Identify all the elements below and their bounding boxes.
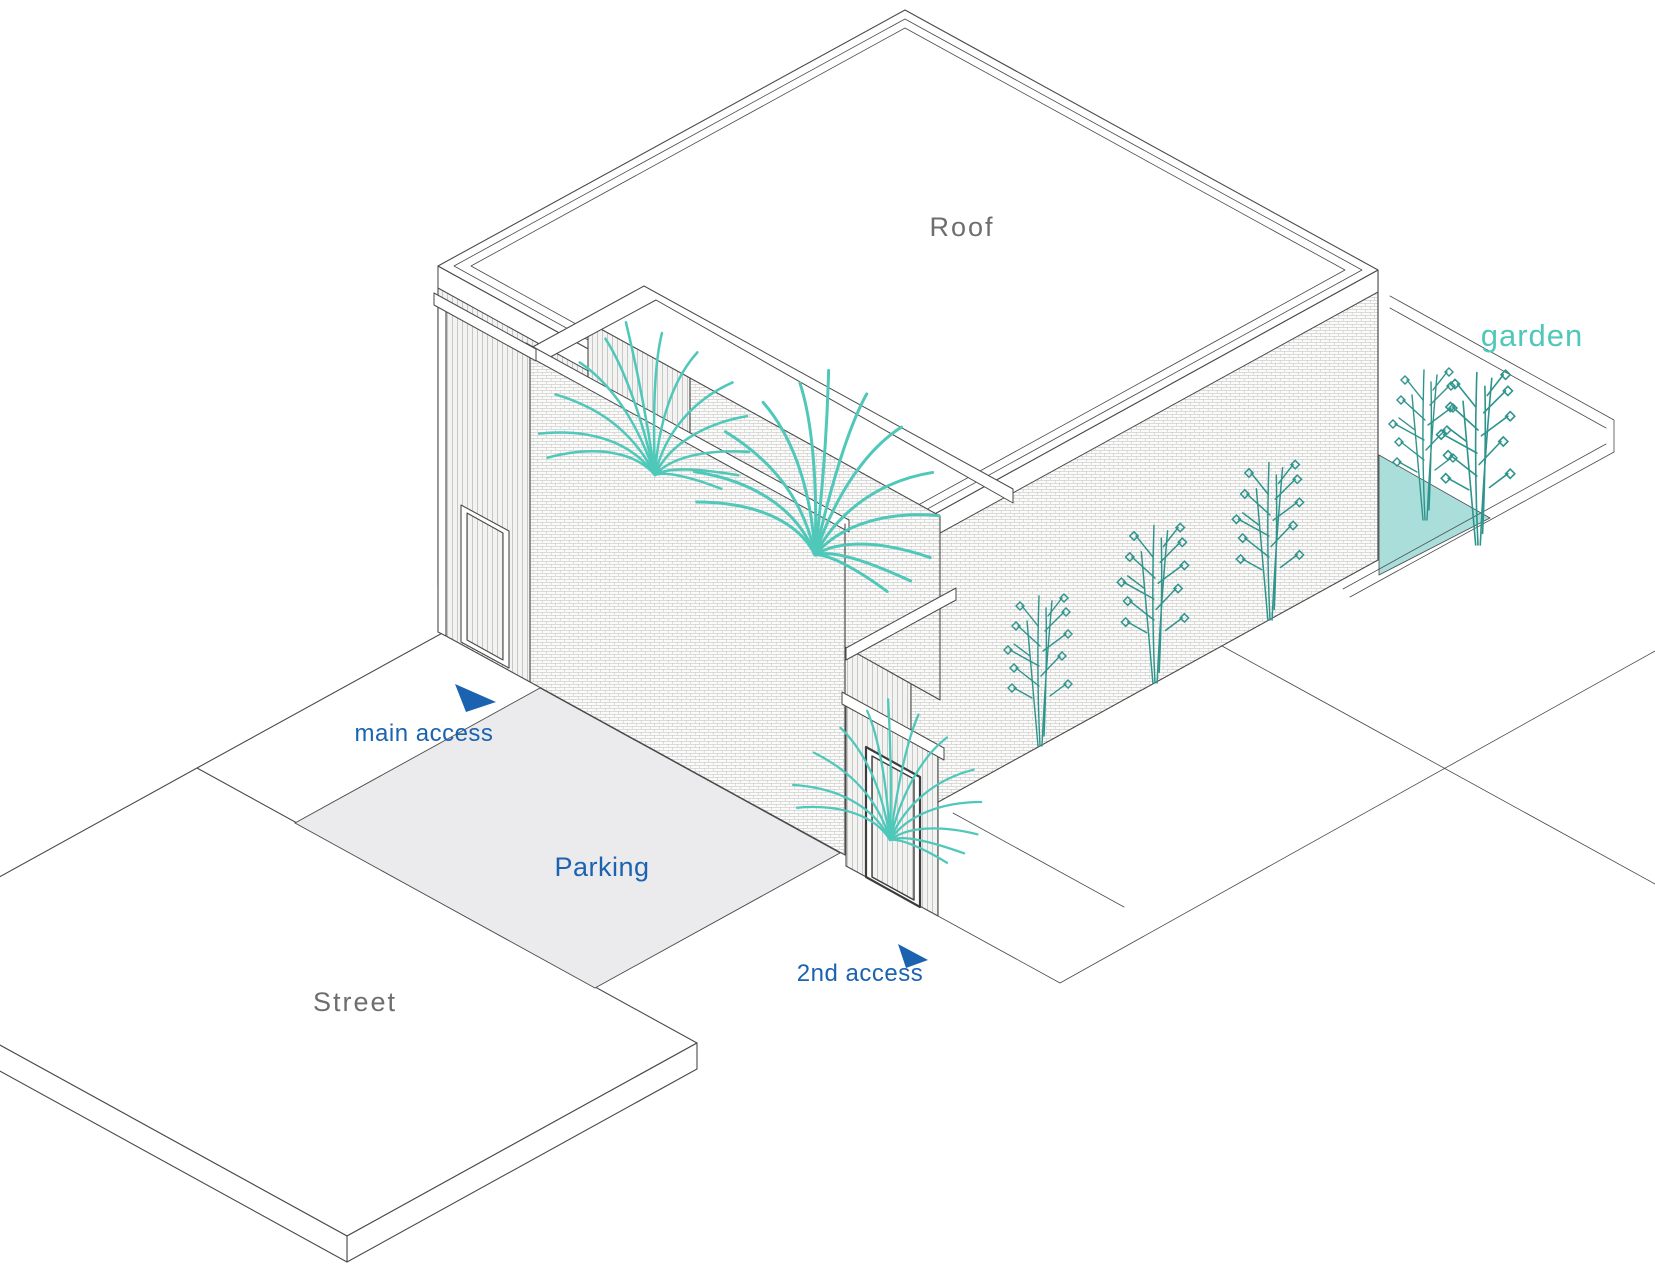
garden-label: garden xyxy=(1481,318,1584,353)
left-facade xyxy=(434,293,536,682)
site-diagram: Roof garden main access Parking 2nd acce… xyxy=(0,0,1655,1279)
main-access-label: main access xyxy=(355,720,494,747)
roof-label: Roof xyxy=(929,212,994,242)
main-door xyxy=(461,505,509,668)
garden-wall-base-edge xyxy=(953,813,1124,907)
street-label: Street xyxy=(313,987,397,1017)
parking-label: Parking xyxy=(554,852,649,882)
second-access-label: 2nd access xyxy=(797,960,923,987)
left-facade-corner-post xyxy=(438,301,446,636)
axonometric-drawing: Roof garden main access Parking 2nd acce… xyxy=(0,0,1655,1279)
